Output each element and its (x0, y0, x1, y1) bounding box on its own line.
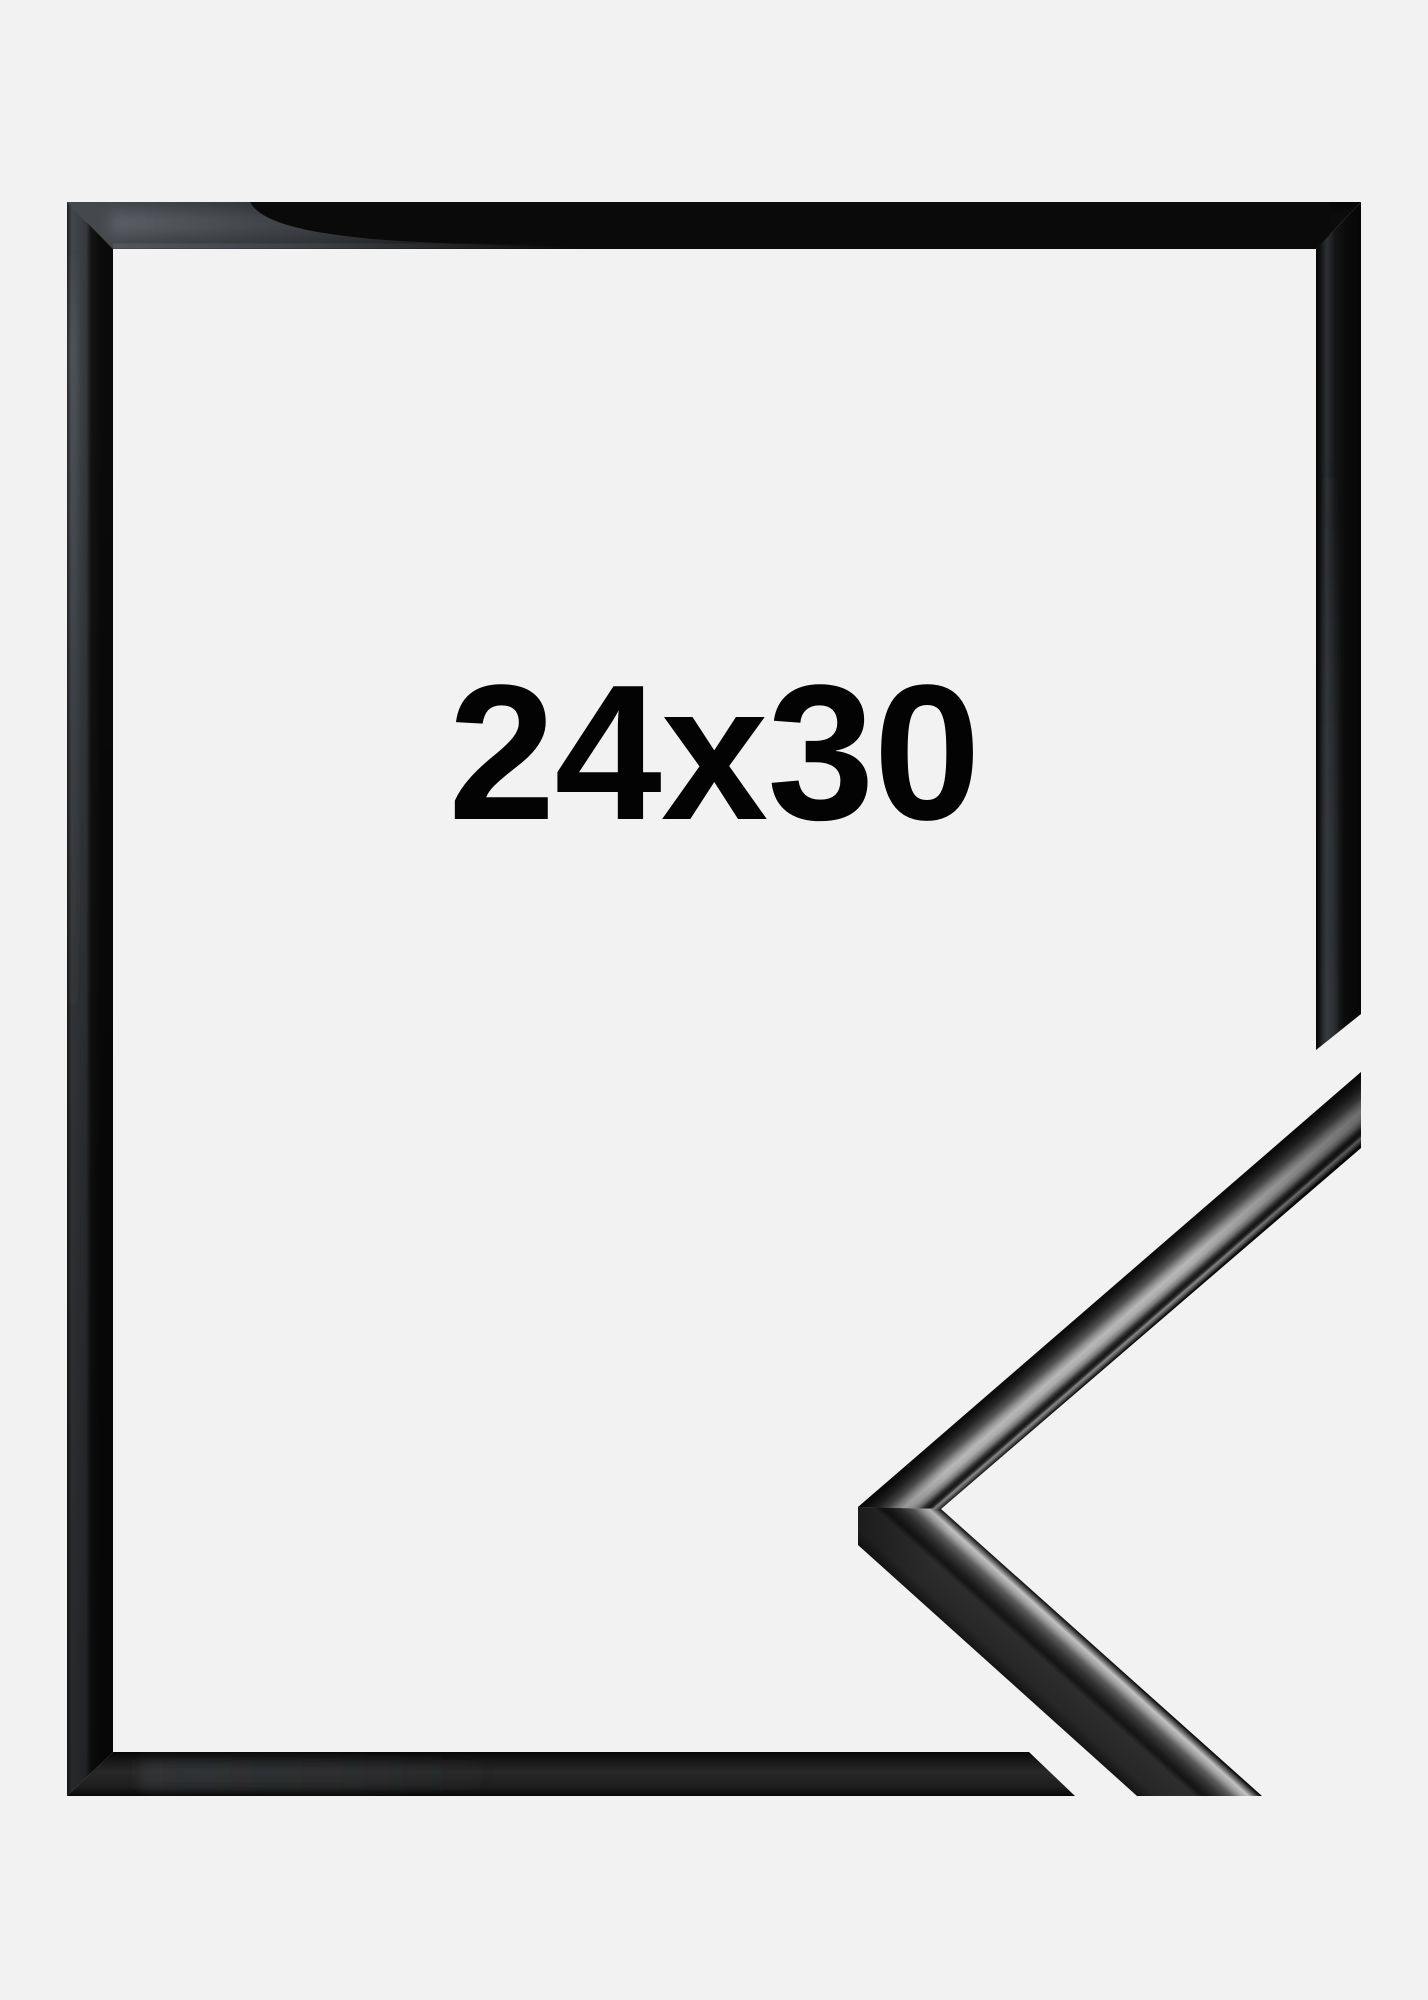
svg-text:24x30: 24x30 (448, 644, 980, 860)
